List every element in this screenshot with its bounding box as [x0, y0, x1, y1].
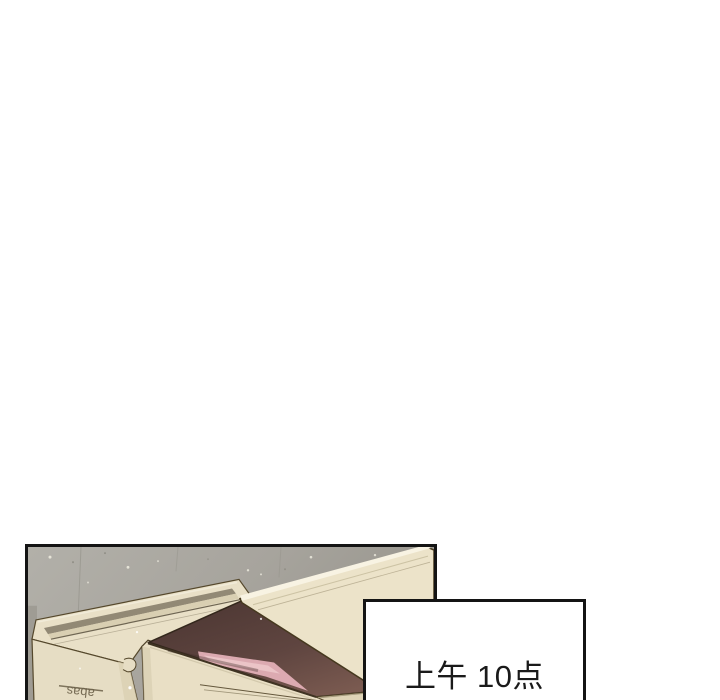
caption-box: 上午 10点 [363, 599, 586, 700]
comic-page: abas [0, 0, 720, 700]
caption-text: 上午 10点 [366, 660, 583, 694]
flap-curl [123, 658, 136, 672]
